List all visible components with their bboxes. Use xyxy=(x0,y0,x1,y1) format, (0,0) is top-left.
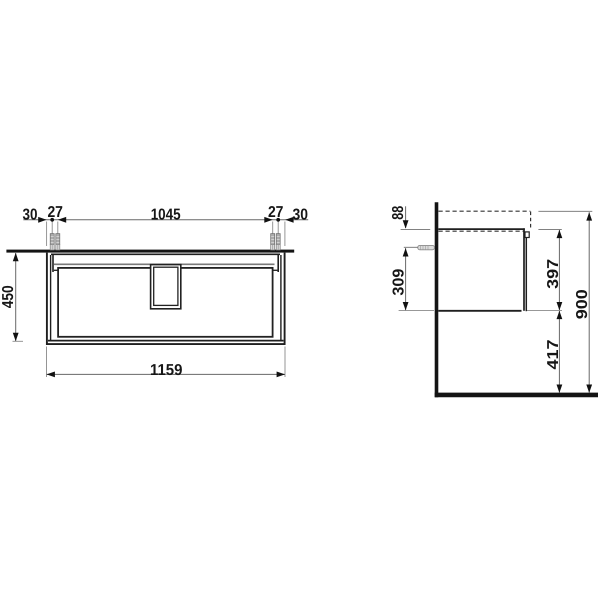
svg-text:309: 309 xyxy=(391,268,408,295)
svg-text:27: 27 xyxy=(47,204,63,221)
svg-text:30: 30 xyxy=(23,207,38,224)
svg-text:397: 397 xyxy=(545,259,562,289)
svg-text:450: 450 xyxy=(0,285,17,308)
svg-text:1159: 1159 xyxy=(150,362,183,379)
svg-text:1045: 1045 xyxy=(151,207,181,224)
svg-text:88: 88 xyxy=(390,206,407,220)
svg-text:900: 900 xyxy=(574,289,591,319)
svg-text:30: 30 xyxy=(293,207,309,224)
svg-text:417: 417 xyxy=(545,339,562,369)
svg-text:27: 27 xyxy=(268,204,284,221)
